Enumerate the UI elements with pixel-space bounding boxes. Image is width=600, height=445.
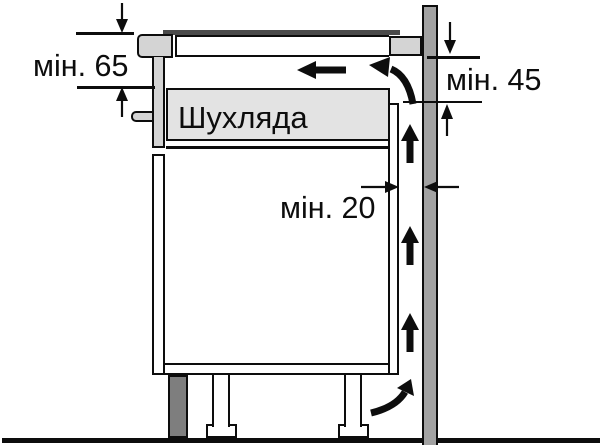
- dim-line-65-top: [76, 32, 134, 35]
- airflow-up-arrow-3: [401, 313, 419, 352]
- dim-line-45-bottom: [403, 101, 482, 104]
- dim-arrow-45-up: [441, 104, 453, 136]
- worktop-rear-section: [389, 36, 422, 56]
- min-20-label: мін. 20: [280, 192, 375, 224]
- hob-installation-diagram: мін. 65 мін. 45 мін. 20 Шухляда: [0, 0, 600, 445]
- airflow-curve-bottom-arrow: [371, 379, 414, 413]
- hob-body-cutout: [175, 35, 389, 57]
- hob-front-trim: [137, 34, 173, 58]
- airflow-up-arrow-1: [401, 124, 419, 163]
- cabinet-back-panel: [388, 103, 399, 375]
- cabinet-leg-back: [344, 374, 362, 427]
- min-45-label: мін. 45: [446, 64, 541, 96]
- floor-line: [2, 438, 600, 443]
- drawer-bottom-line: [166, 146, 390, 149]
- drawer-label: Шухляда: [178, 102, 308, 135]
- airflow-left-arrow: [297, 61, 346, 79]
- min-65-label: мін. 65: [33, 50, 128, 82]
- wall: [422, 5, 438, 445]
- cabinet-bottom-panel: [165, 363, 399, 375]
- dim-arrow-45-down: [444, 22, 456, 54]
- drawer-front-panel: [152, 57, 165, 148]
- airflow-up-arrow-2: [401, 226, 419, 265]
- cabinet-front-panel: [152, 154, 165, 375]
- dim-line-45-top: [427, 56, 480, 59]
- cabinet-leg-front: [212, 374, 230, 427]
- dim-line-65-bottom: [77, 86, 155, 89]
- plinth-panel: [168, 375, 188, 438]
- dim-arrow-65-up: [116, 87, 128, 117]
- dim-arrow-65-down: [116, 3, 128, 33]
